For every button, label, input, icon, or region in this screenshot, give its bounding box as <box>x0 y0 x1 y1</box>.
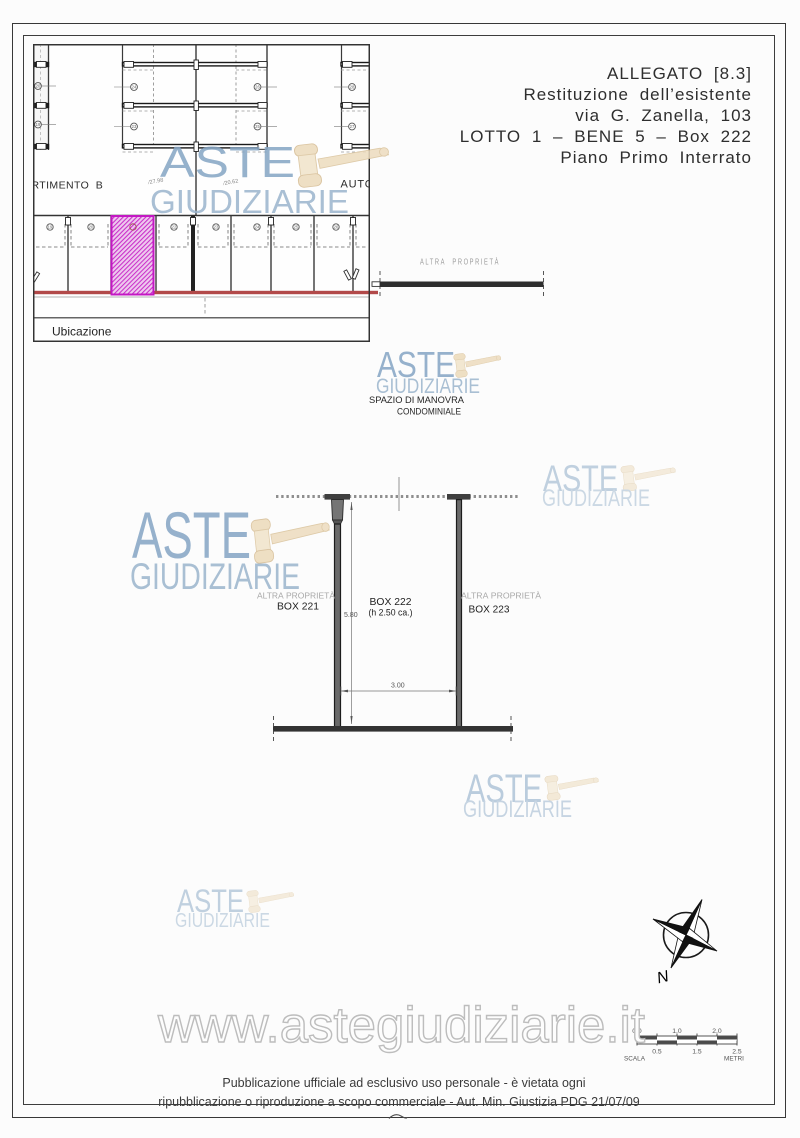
svg-text:2.5: 2.5 <box>732 1049 742 1056</box>
svg-text:Ubicazione: Ubicazione <box>52 325 112 339</box>
svg-text:26: 26 <box>255 85 260 90</box>
svg-text:ASTE: ASTE <box>160 140 295 187</box>
svg-text:CONDOMINIALE: CONDOMINIALE <box>397 407 461 418</box>
svg-text:(h 2.50 ca.): (h 2.50 ca.) <box>369 608 413 618</box>
svg-text:27: 27 <box>350 124 355 129</box>
svg-text:1.5: 1.5 <box>692 1049 702 1056</box>
svg-text:GIUDIZIARIE: GIUDIZIARIE <box>463 796 572 820</box>
svg-text:BOX 222: BOX 222 <box>370 596 412 608</box>
svg-text:ALTRA PROPRIETÀ: ALTRA PROPRIETÀ <box>420 258 500 267</box>
svg-text:www.astegiudiziarie.it: www.astegiudiziarie.it <box>157 997 645 1053</box>
svg-text:RTIMENTO B: RTIMENTO B <box>33 180 103 192</box>
svg-text:20: 20 <box>36 84 41 89</box>
svg-text:GIUDIZIARIE: GIUDIZIARIE <box>130 556 300 597</box>
svg-text:25: 25 <box>255 124 260 129</box>
svg-text:5.80: 5.80 <box>344 612 358 619</box>
svg-text:3.00: 3.00 <box>391 683 405 690</box>
svg-text:BOX 221: BOX 221 <box>277 601 319 613</box>
svg-text:GIUDIZIARIE: GIUDIZIARIE <box>150 183 349 220</box>
svg-text:GIUDIZIARIE: GIUDIZIARIE <box>376 375 480 398</box>
svg-text:ALTRA PROPRIETÀ: ALTRA PROPRIETÀ <box>461 592 542 601</box>
svg-text:19: 19 <box>36 122 41 127</box>
svg-text:METRI: METRI <box>724 1056 744 1063</box>
svg-text:GIUDIZIARIE: GIUDIZIARIE <box>542 485 650 512</box>
svg-text:28: 28 <box>350 85 355 90</box>
svg-text:24: 24 <box>132 85 137 90</box>
svg-text:BOX 223: BOX 223 <box>469 604 510 616</box>
svg-text:23: 23 <box>132 124 137 129</box>
svg-text:GIUDIZIARIE: GIUDIZIARIE <box>175 910 270 931</box>
